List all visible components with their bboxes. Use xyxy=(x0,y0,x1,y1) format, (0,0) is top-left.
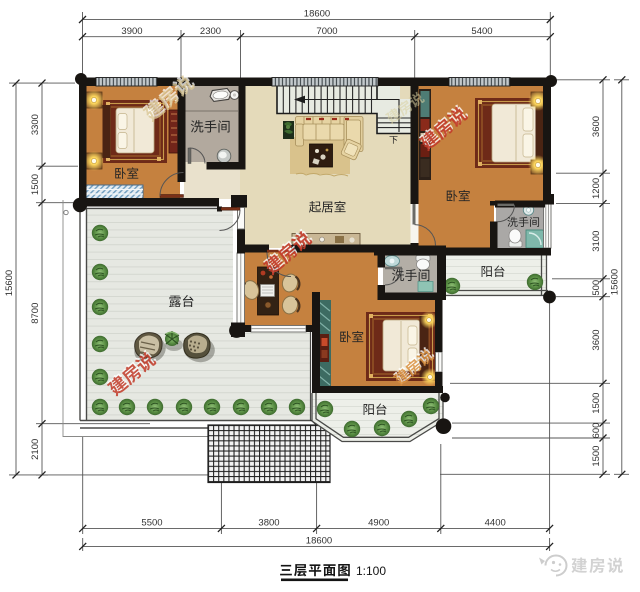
svg-text:8700: 8700 xyxy=(30,303,41,324)
svg-text:1500: 1500 xyxy=(30,174,41,195)
svg-text:1500: 1500 xyxy=(591,446,602,467)
svg-text:3600: 3600 xyxy=(591,329,602,350)
svg-text:1500: 1500 xyxy=(591,393,602,414)
svg-text:7000: 7000 xyxy=(316,26,337,37)
svg-text:15600: 15600 xyxy=(4,270,15,296)
svg-text:1200: 1200 xyxy=(591,178,602,199)
svg-text:3800: 3800 xyxy=(258,517,279,528)
svg-text:2300: 2300 xyxy=(200,26,221,37)
svg-text:600: 600 xyxy=(591,423,602,439)
svg-text:3600: 3600 xyxy=(591,116,602,137)
svg-text:4400: 4400 xyxy=(485,517,506,528)
svg-text:4900: 4900 xyxy=(368,517,389,528)
svg-text:3100: 3100 xyxy=(591,231,602,252)
svg-text:18600: 18600 xyxy=(306,535,332,546)
svg-text:1:100: 1:100 xyxy=(356,564,386,578)
svg-text:18600: 18600 xyxy=(304,9,330,20)
svg-text:3300: 3300 xyxy=(30,114,41,135)
svg-text:500: 500 xyxy=(591,280,602,296)
svg-text:5400: 5400 xyxy=(471,26,492,37)
svg-text:5500: 5500 xyxy=(141,517,162,528)
svg-text:2100: 2100 xyxy=(30,439,41,460)
svg-text:15600: 15600 xyxy=(610,269,621,295)
svg-text:3900: 3900 xyxy=(121,26,142,37)
